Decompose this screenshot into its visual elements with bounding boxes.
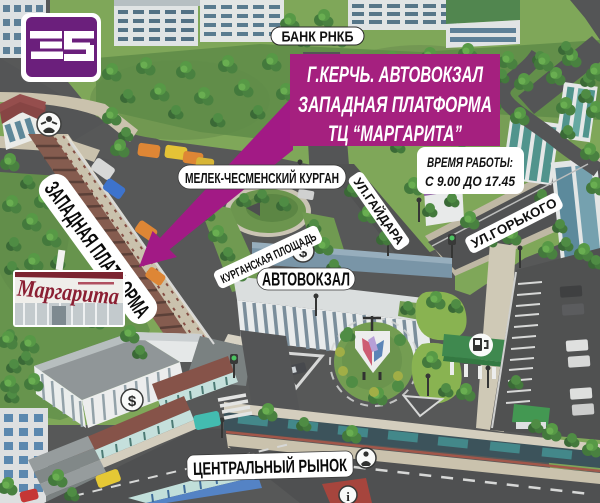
svg-text:ЦЕНТРАЛЬНЫЙ РЫНОК: ЦЕНТРАЛЬНЫЙ РЫНОК <box>193 454 348 479</box>
svg-text:Г.КЕРЧЬ. АВТОВОКЗАЛ: Г.КЕРЧЬ. АВТОВОКЗАЛ <box>307 62 484 87</box>
svg-text:ВРЕМЯ РАБОТЫ:: ВРЕМЯ РАБОТЫ: <box>427 154 513 170</box>
svg-text:С 9.00 ДО 17.45: С 9.00 ДО 17.45 <box>425 173 515 189</box>
svg-text:ЗАПАДНАЯ ПЛАТФОРМА: ЗАПАДНАЯ ПЛАТФОРМА <box>298 92 492 117</box>
svg-text:БАНК РНКБ: БАНК РНКБ <box>282 29 354 46</box>
svg-text:МЕЛЕК-ЧЕСМЕНСКИЙ КУРГАН: МЕЛЕК-ЧЕСМЕНСКИЙ КУРГАН <box>185 169 339 187</box>
svg-text:ТЦ “МАРГАРИТА”: ТЦ “МАРГАРИТА” <box>328 121 462 146</box>
svg-text:АВТОВОКЗАЛ: АВТОВОКЗАЛ <box>262 270 350 290</box>
